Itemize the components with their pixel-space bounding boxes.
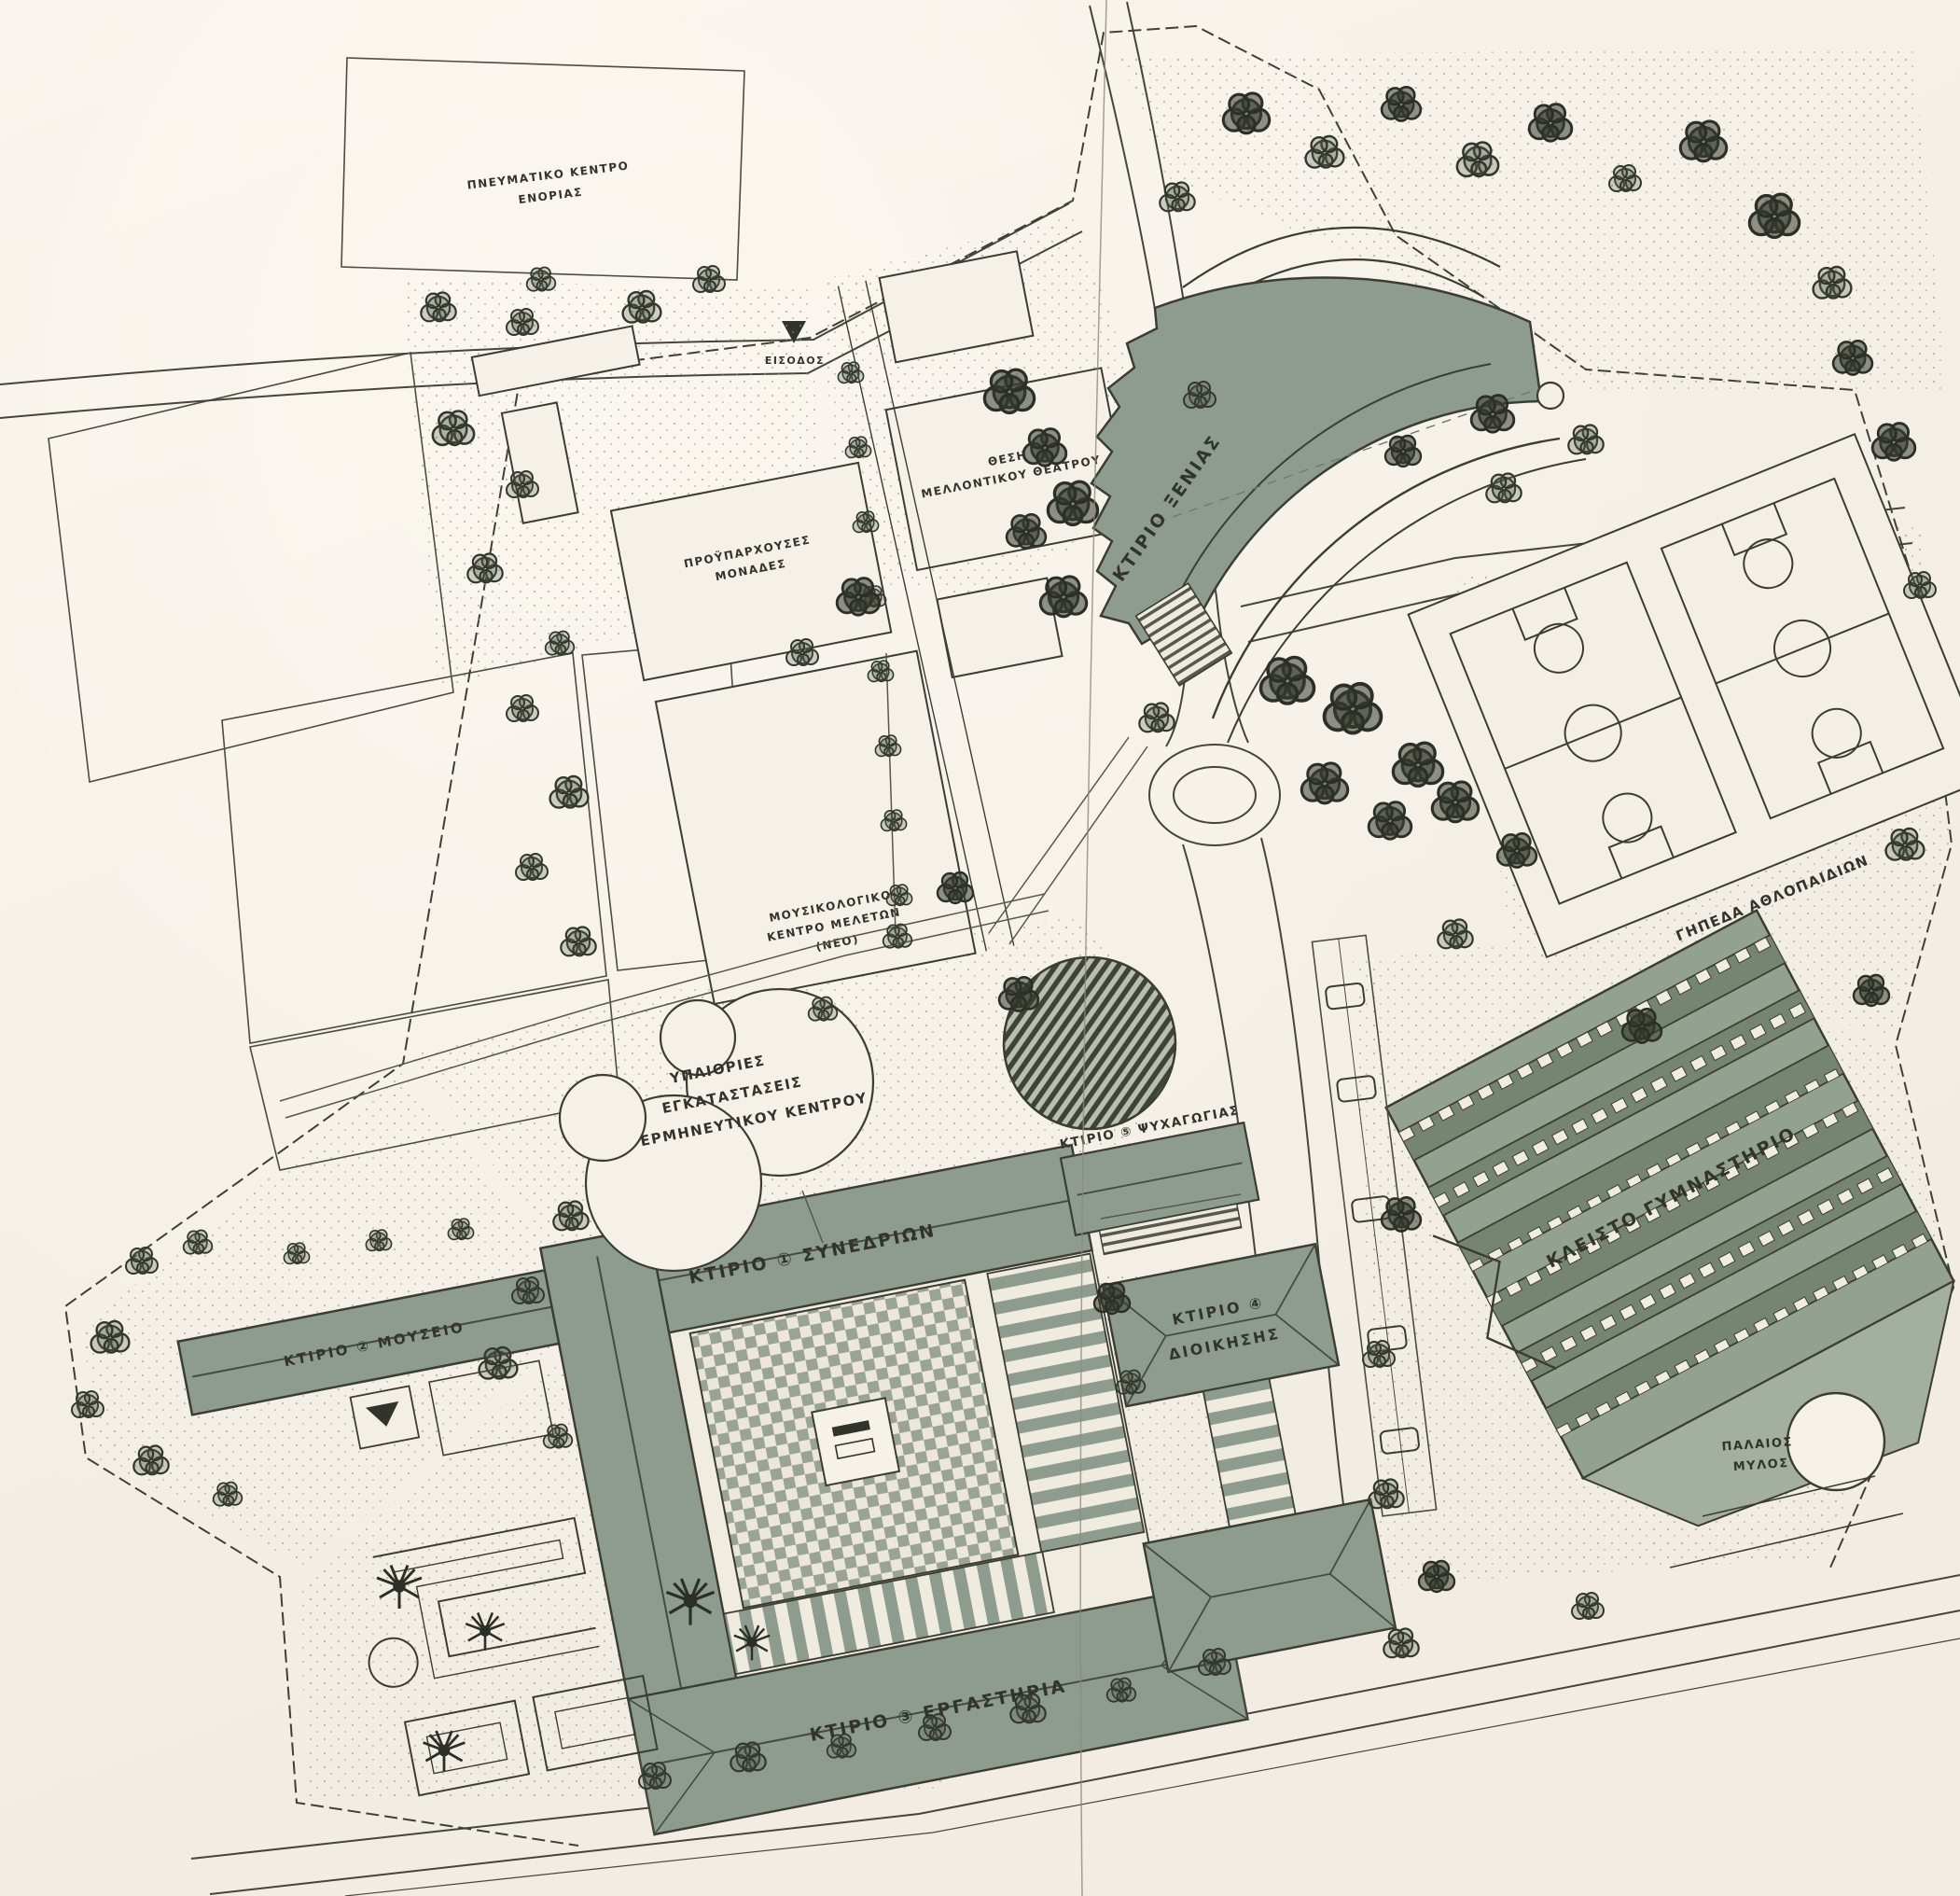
site-plan-scan: ΠΝΕΥΜΑΤΙΚΟ ΚΕΝΤΡΟ ΕΝΟΡΙΑΣ ΕΙΣΟΔΟΣ — [0, 0, 1960, 1896]
parish-label-line1: ΠΝΕΥΜΑΤΙΚΟ ΚΕΝΤΡΟ — [466, 159, 630, 191]
site-plan-drawing: ΠΝΕΥΜΑΤΙΚΟ ΚΕΝΤΡΟ ΕΝΟΡΙΑΣ ΕΙΣΟΔΟΣ — [0, 0, 1960, 1896]
parish-label-line2: ΕΝΟΡΙΑΣ — [518, 186, 584, 206]
parish-label: ΠΝΕΥΜΑΤΙΚΟ ΚΕΝΤΡΟ ΕΝΟΡΙΑΣ — [466, 159, 632, 212]
